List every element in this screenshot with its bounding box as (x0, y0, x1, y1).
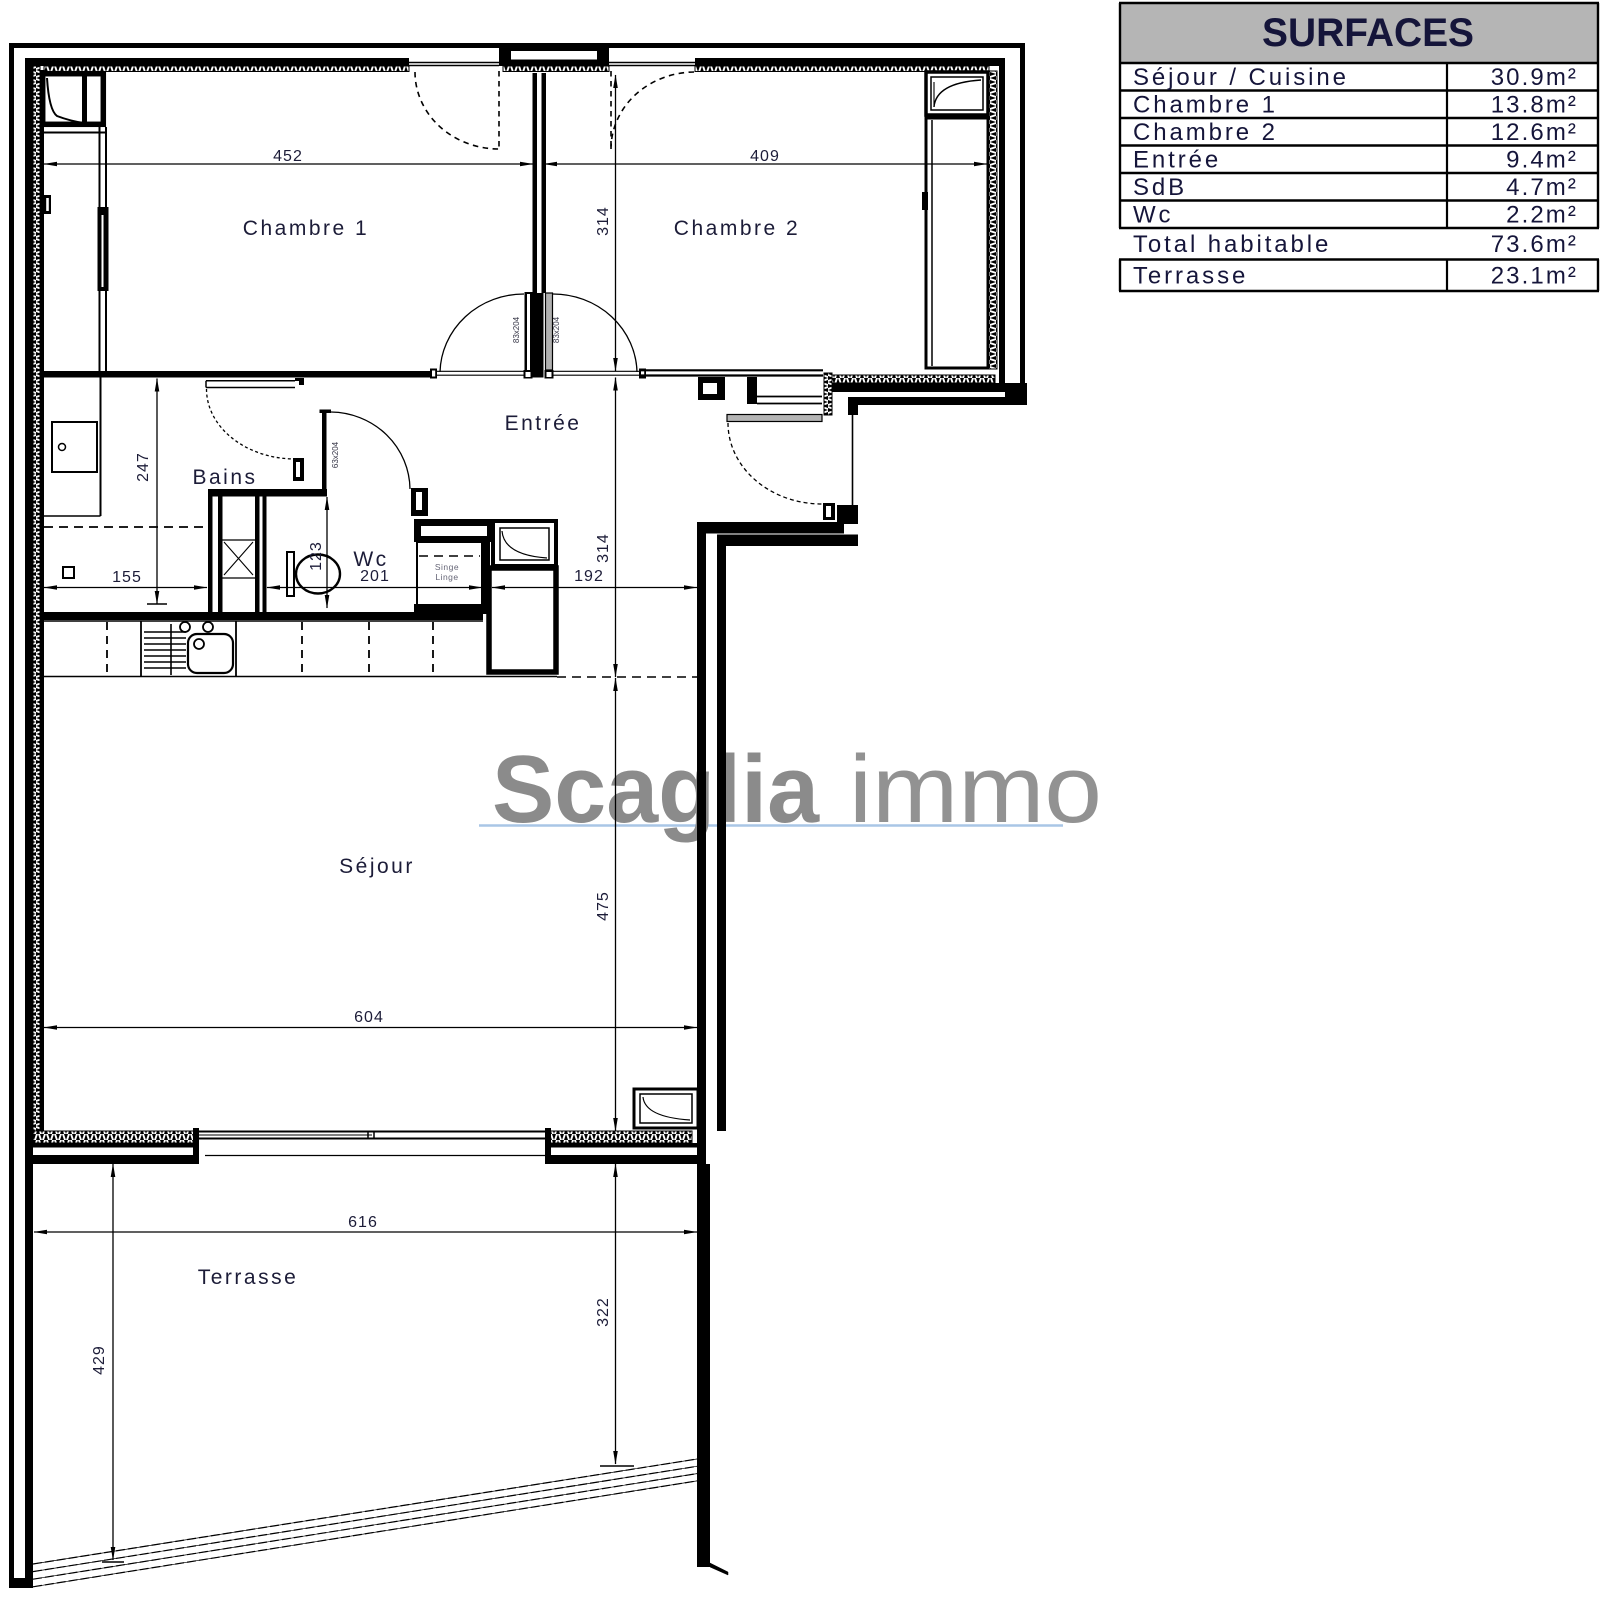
svg-text:Wc: Wc (1133, 201, 1173, 228)
svg-text:23.1m²: 23.1m² (1491, 262, 1578, 289)
svg-text:Singe: Singe (435, 562, 459, 572)
svg-text:Linge: Linge (435, 572, 458, 582)
svg-text:452: 452 (273, 148, 303, 165)
svg-text:83x204: 83x204 (552, 316, 561, 343)
svg-text:63x204: 63x204 (331, 441, 340, 468)
svg-text:Chambre 1: Chambre 1 (243, 217, 369, 240)
svg-text:604: 604 (354, 1009, 384, 1026)
svg-text:4.7m²: 4.7m² (1506, 174, 1578, 201)
svg-text:Terrasse: Terrasse (1133, 262, 1248, 289)
svg-text:Séjour: Séjour (339, 855, 415, 878)
svg-text:SURFACES: SURFACES (1262, 11, 1474, 55)
svg-text:192: 192 (574, 568, 604, 585)
svg-text:322: 322 (595, 1297, 612, 1327)
svg-text:SdB: SdB (1133, 174, 1187, 201)
svg-text:13.8m²: 13.8m² (1491, 91, 1578, 118)
svg-text:314: 314 (595, 533, 612, 563)
svg-text:475: 475 (595, 891, 612, 921)
svg-text:30.9m²: 30.9m² (1491, 64, 1578, 91)
svg-text:Wc: Wc (353, 548, 388, 571)
svg-text:247: 247 (135, 452, 152, 482)
svg-text:Scaglia: Scaglia (492, 736, 820, 843)
svg-text:Chambre 2: Chambre 2 (1133, 119, 1278, 146)
svg-text:Entrée: Entrée (505, 412, 582, 435)
svg-text:Chambre 2: Chambre 2 (674, 217, 800, 240)
svg-text:12.6m²: 12.6m² (1491, 119, 1578, 146)
svg-text:immo: immo (849, 736, 1102, 843)
svg-text:616: 616 (348, 1214, 378, 1231)
svg-text:9.4m²: 9.4m² (1506, 146, 1578, 173)
svg-text:155: 155 (112, 569, 142, 586)
svg-text:409: 409 (750, 148, 780, 165)
svg-text:73.6m²: 73.6m² (1491, 231, 1578, 258)
svg-text:Terrasse: Terrasse (198, 1266, 299, 1289)
svg-text:429: 429 (91, 1345, 108, 1375)
svg-text:123: 123 (308, 541, 325, 571)
svg-text:Entrée: Entrée (1133, 146, 1221, 173)
svg-text:Chambre 1: Chambre 1 (1133, 91, 1278, 118)
svg-text:Total habitable: Total habitable (1133, 231, 1331, 258)
svg-text:314: 314 (595, 206, 612, 236)
svg-text:Séjour / Cuisine: Séjour / Cuisine (1133, 64, 1349, 91)
svg-text:83x204: 83x204 (512, 316, 521, 343)
svg-text:2.2m²: 2.2m² (1506, 201, 1578, 228)
svg-text:Bains: Bains (192, 466, 257, 489)
